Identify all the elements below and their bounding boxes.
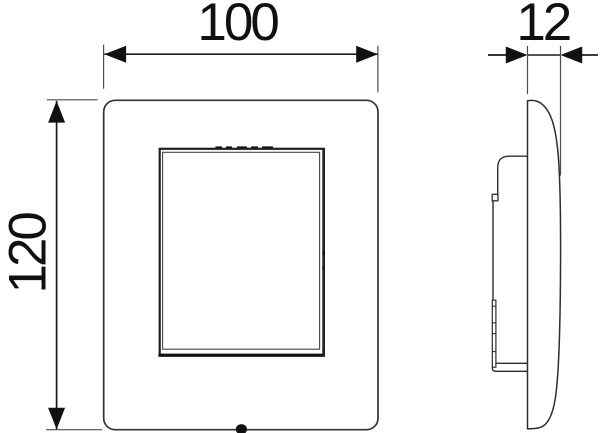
svg-text:120: 120 — [0, 213, 58, 294]
svg-text:12: 12 — [516, 0, 569, 52]
svg-text:100: 100 — [197, 0, 278, 52]
